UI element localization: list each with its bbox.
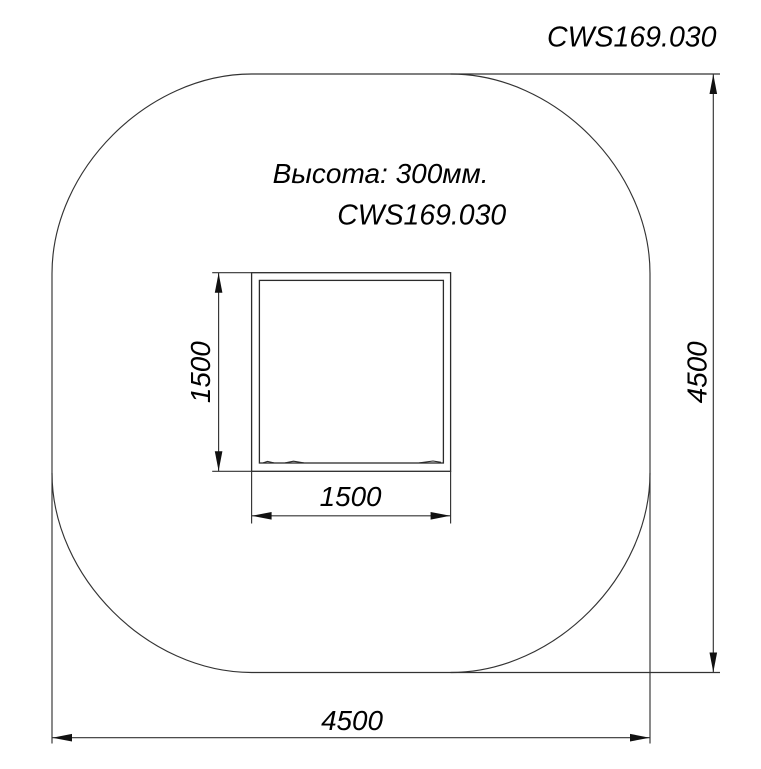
svg-text:4500: 4500 (682, 341, 713, 403)
svg-text:CWS169.030: CWS169.030 (547, 22, 717, 54)
svg-text:CWS169.030: CWS169.030 (337, 199, 506, 231)
svg-text:1500: 1500 (320, 481, 382, 512)
svg-text:1500: 1500 (185, 341, 216, 403)
svg-text:Высота: 300мм.: Высота: 300мм. (273, 158, 489, 189)
svg-text:4500: 4500 (321, 705, 383, 736)
